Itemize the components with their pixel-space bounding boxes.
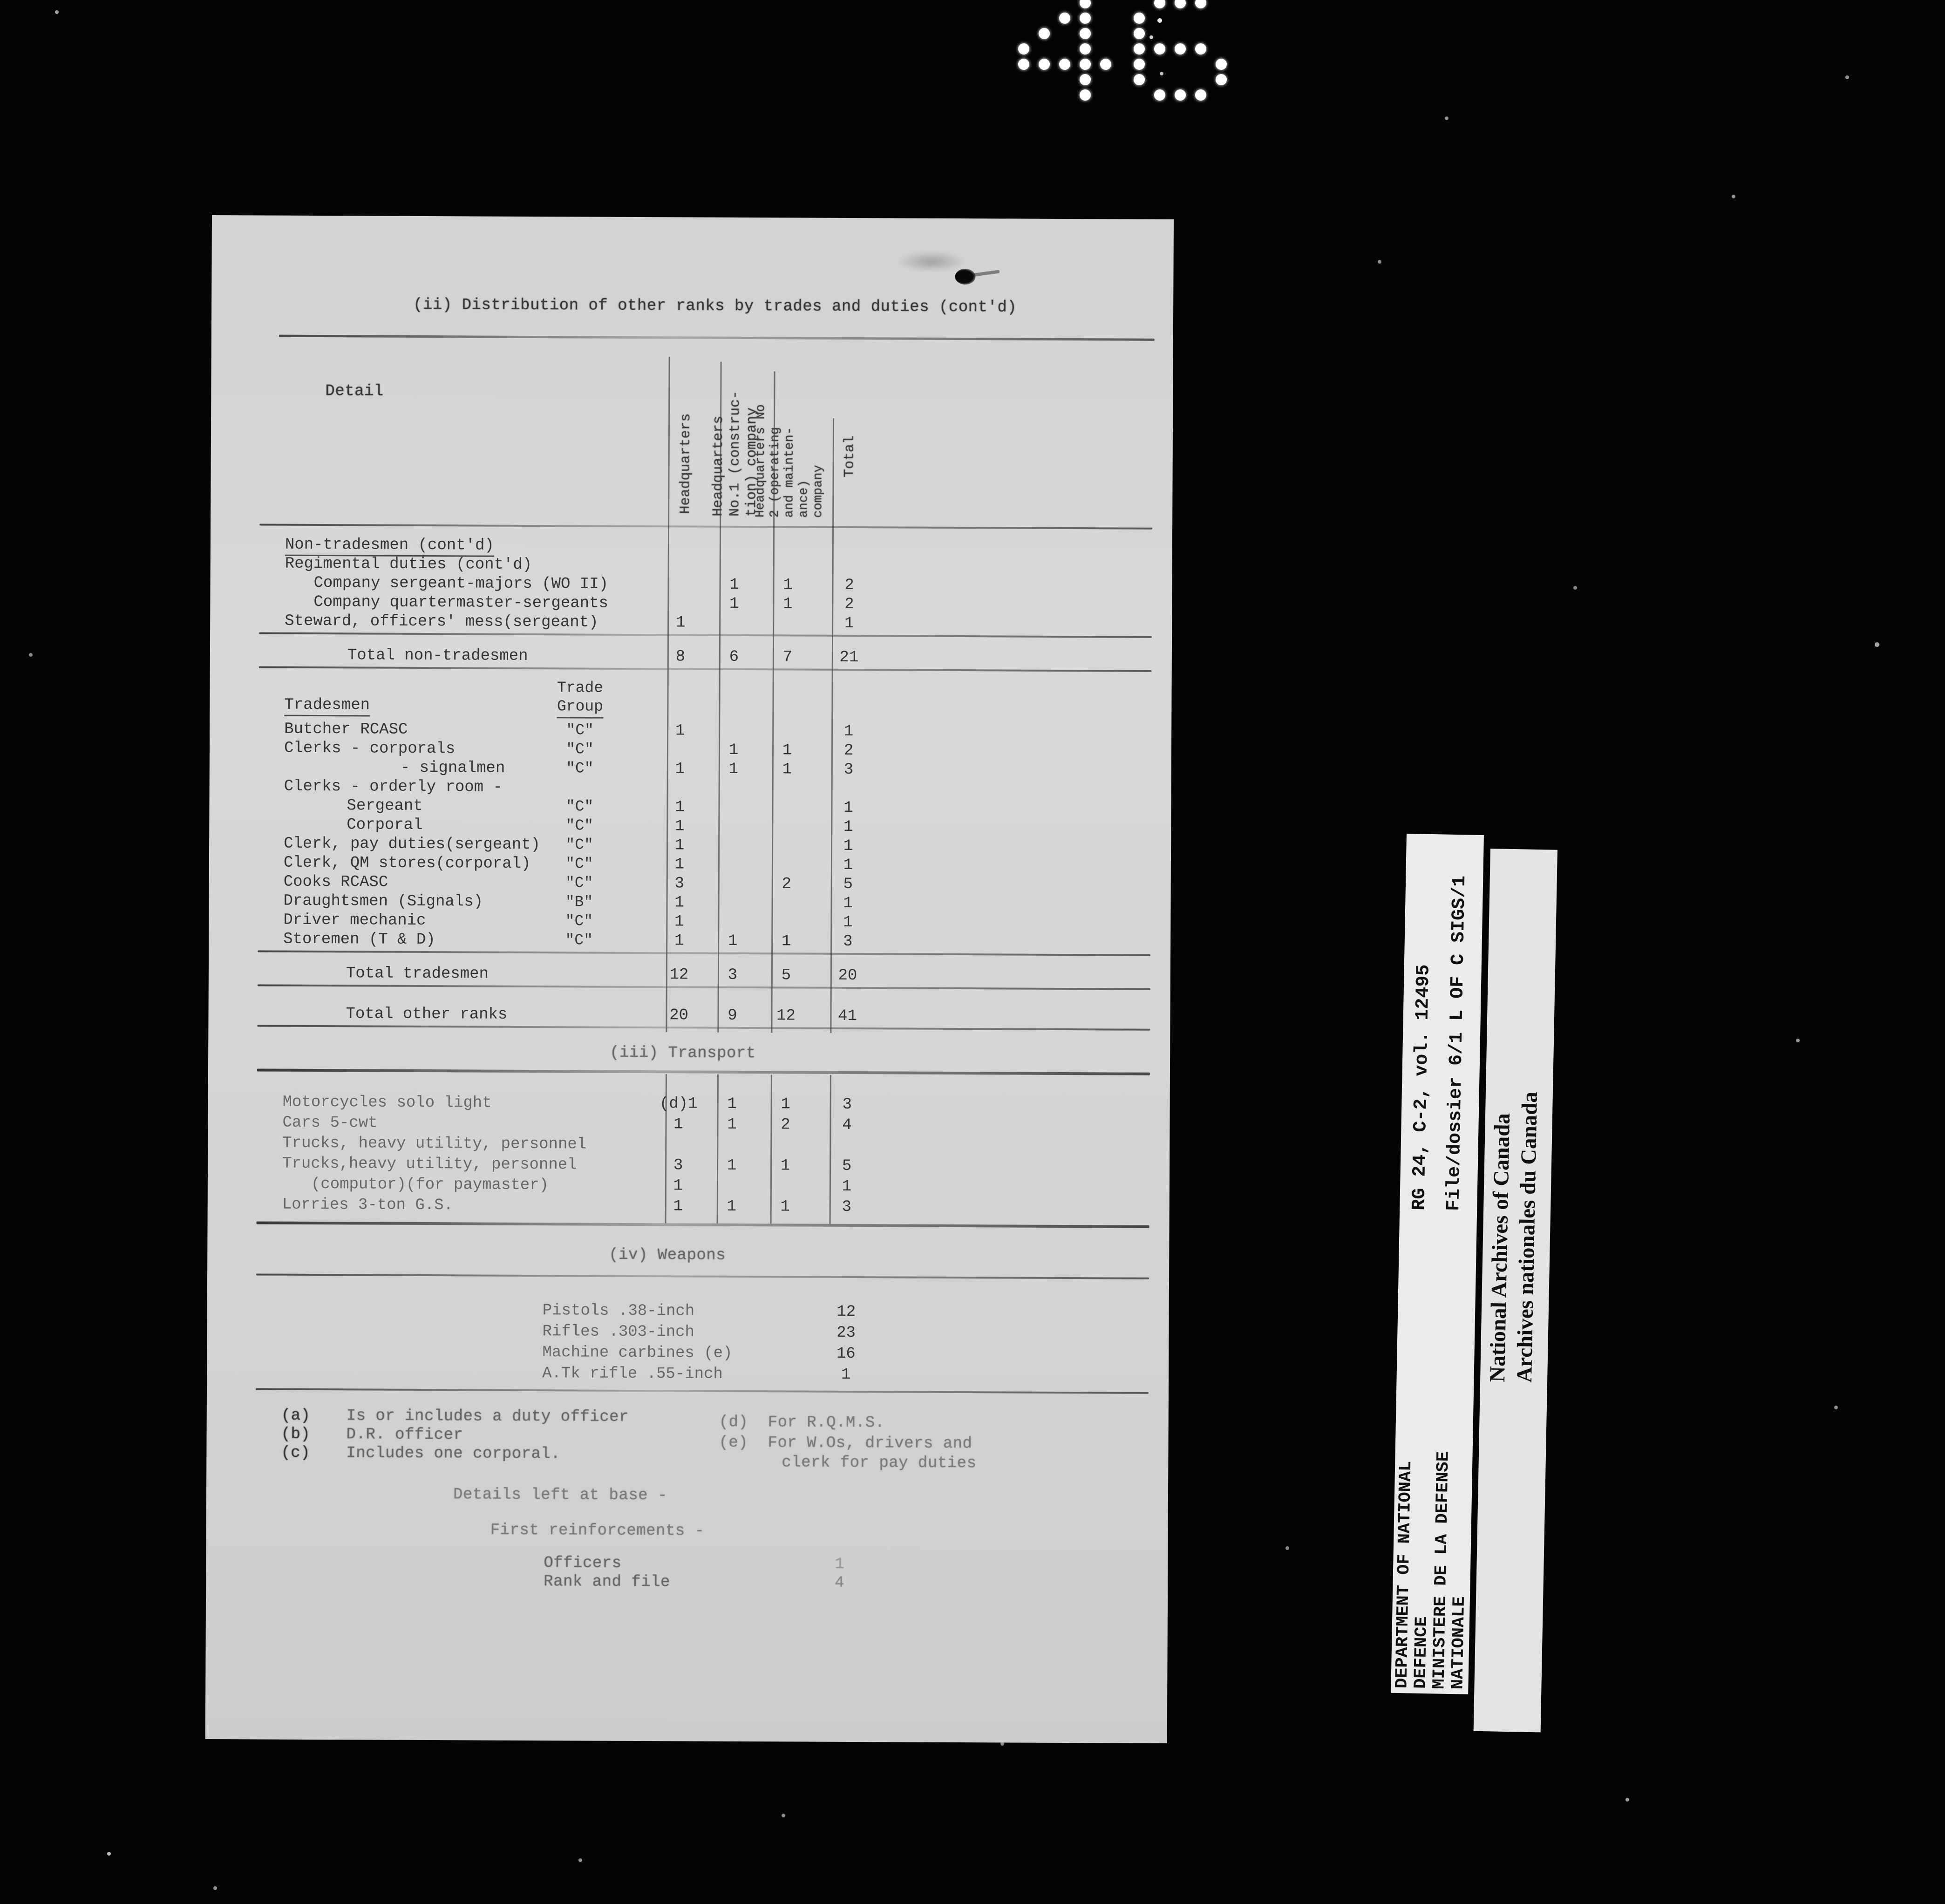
row-label: Cars 5-cwt	[282, 1114, 377, 1132]
footnote-text: Is or includes a duty officer	[347, 1407, 629, 1426]
weapons-bottom-rule	[256, 1388, 1149, 1394]
dot	[1195, 89, 1206, 101]
table-row: Storemen (T & D)"C"1113	[209, 930, 1145, 953]
department-label: DEPARTMENT OF NATIONALDEFENCEMINISTERE D…	[1391, 1343, 1475, 1694]
row-label: Trucks,heavy utility, personnel	[282, 1155, 577, 1174]
row-label: Total tradesmen	[346, 965, 489, 983]
trade-group-cell: "C"	[552, 760, 608, 777]
reinforcement-value: 1	[835, 1556, 844, 1573]
row-label: Total non-tradesmen	[347, 646, 528, 665]
value-cell: 12	[650, 966, 708, 984]
value-cell: 7	[759, 648, 816, 666]
dot	[1018, 59, 1029, 70]
value-cell: 1	[819, 895, 877, 913]
dot	[1134, 43, 1145, 54]
value-cell: 3	[818, 1198, 876, 1217]
value-cell: 1	[651, 798, 708, 816]
value-cell: 5	[819, 876, 877, 894]
value-cell: 1	[704, 932, 762, 951]
header-line: Group	[557, 697, 603, 718]
row-label: - signalmen	[401, 759, 505, 777]
ink-blob	[955, 269, 975, 285]
value-cell: 1	[819, 857, 877, 875]
row-label: Motorcycles solo light	[283, 1094, 492, 1112]
header-line: Total	[842, 270, 859, 477]
value-cell: 1	[705, 595, 763, 613]
dot	[1080, 89, 1091, 101]
weapons-top-rule	[256, 1273, 1149, 1279]
row-label: Non-tradesmen (cont'd)	[285, 536, 494, 557]
value-cell: 1	[759, 595, 816, 613]
table-row: Cars 5-cwt1124	[208, 1114, 1144, 1137]
value-cell: 2	[820, 577, 878, 595]
value-cell: 1	[817, 1366, 875, 1384]
value-cell: 1	[651, 722, 709, 740]
value-cell: 1	[651, 856, 708, 874]
row-label: Butcher RCASC	[284, 721, 408, 739]
reinforcement-label: Officers	[544, 1554, 621, 1572]
weapons-table	[212, 215, 1174, 219]
value-cell: 2	[820, 596, 878, 614]
value-cell: 16	[817, 1345, 875, 1363]
dot	[1216, 59, 1227, 70]
value-cell: 9	[703, 1007, 761, 1025]
value-cell: 5	[818, 1157, 876, 1176]
value-cell: 1	[703, 1198, 761, 1216]
table-row: Lorries 3-ton G.S.1113	[208, 1196, 1144, 1219]
value-cell: 1	[757, 932, 815, 951]
transport-section-title: (iii) Transport	[610, 1044, 756, 1062]
row-label: Steward, officers' mess(sergeant)	[285, 612, 598, 632]
footnote-marker: (b)	[281, 1426, 310, 1443]
trade-group-cell: "C"	[551, 912, 607, 930]
table-row: Rifles .303-inch23	[207, 1321, 1143, 1345]
weapons-section-title: (iv) Weapons	[609, 1246, 726, 1265]
value-cell: 1	[703, 1116, 761, 1134]
dot	[1134, 13, 1145, 24]
dot	[1154, 43, 1165, 54]
trade-group-cell: "C"	[552, 721, 608, 739]
row-label: Machine carbines (e)	[542, 1344, 732, 1362]
value-cell: 2	[820, 742, 877, 760]
value-cell: 3	[649, 1156, 707, 1175]
row-label: Clerk, pay duties(sergeant)	[284, 835, 540, 854]
table-row: A.Tk rifle .55-inch1	[207, 1363, 1143, 1387]
reinforcement-label: Rank and file	[544, 1573, 670, 1591]
value-cell: 21	[820, 649, 878, 667]
table-row: Total other ranks2091241	[208, 1005, 1144, 1028]
value-cell: 8	[652, 648, 709, 666]
value-cell: 1	[756, 1157, 814, 1175]
trade-group-cell: "C"	[551, 874, 607, 892]
header-line: Archives nationales du Canada	[1511, 1092, 1544, 1383]
archival-reference: RG 24, C-2, vol. 12495 File/dossier 6/1 …	[1400, 875, 1483, 1211]
value-cell: 1	[649, 1197, 707, 1216]
dot	[1080, 74, 1091, 85]
value-cell: 1	[650, 913, 708, 931]
col-header-headquarters: Headquarters	[677, 306, 695, 521]
strip-spacer	[1397, 1210, 1477, 1344]
value-cell: 3	[820, 761, 877, 779]
dot	[1175, 89, 1186, 101]
table-row: Pistols .38-inch12	[207, 1300, 1143, 1324]
row-label: Draughtsmen (Signals)	[283, 892, 483, 911]
header-line: Headquarters	[710, 309, 728, 517]
dot	[1134, 28, 1145, 39]
row-label: Lorries 3-ton G.S.	[282, 1196, 453, 1215]
value-cell: 1	[820, 723, 877, 741]
dot	[1080, 28, 1091, 39]
value-cell: 20	[650, 1006, 707, 1025]
header-line: Headquarters	[677, 306, 695, 514]
value-cell: 1	[650, 894, 708, 912]
film-speckles	[0, 0, 2, 2]
header-line: and mainten-	[782, 310, 798, 517]
table-row: Trucks, heavy utility, personnel	[208, 1134, 1144, 1157]
value-cell: 1	[705, 741, 762, 760]
row-label: Sergeant	[347, 797, 422, 815]
table-row: Motorcycles solo light(d)1113	[208, 1093, 1144, 1116]
value-cell: 12	[757, 1007, 815, 1025]
trade-group-cell: "C"	[552, 741, 608, 758]
value-cell: 1	[758, 741, 816, 760]
value-cell: 1	[651, 836, 708, 855]
dot	[1039, 59, 1050, 70]
dot	[1175, 0, 1186, 8]
value-cell: 2	[758, 875, 816, 893]
footnote-text: D.R. officer	[346, 1426, 463, 1444]
value-cell: 1	[650, 932, 708, 950]
header-line: 2 (operating	[768, 310, 783, 517]
value-cell: 1	[703, 1157, 761, 1175]
row-label: (computor)(for paymaster)	[311, 1176, 549, 1194]
row-label: Driver mechanic	[283, 911, 426, 930]
dot	[1059, 59, 1070, 70]
trade-group-cell: "C"	[551, 932, 607, 949]
dot	[1134, 74, 1145, 85]
value-cell: 1	[818, 1178, 876, 1196]
footnote-marker: (e)	[719, 1434, 748, 1452]
national-archives-strip: National Archives of CanadaArchives nati…	[1474, 849, 1557, 1732]
value-cell: 1	[819, 818, 877, 836]
dot	[1195, 43, 1206, 54]
faint-smudge	[896, 251, 966, 272]
transport-top-rule	[257, 1068, 1150, 1075]
col-header-total: Total	[841, 270, 859, 522]
value-cell: 1	[649, 1115, 707, 1134]
row-label: Clerks - orderly room -	[284, 778, 503, 796]
value-cell: (d)1	[650, 1095, 707, 1113]
value-cell: 1	[652, 614, 709, 632]
dot	[1175, 43, 1186, 54]
table-row: Total tradesmen123520	[209, 964, 1145, 987]
value-cell: 5	[757, 966, 815, 985]
trade-group-cell: "B"	[551, 893, 607, 911]
document-page: (ii) Distribution of other ranks by trad…	[205, 215, 1174, 1743]
value-cell: 1	[703, 1095, 761, 1114]
dot	[1195, 0, 1206, 8]
details-left-at-base: Details left at base -	[453, 1486, 667, 1504]
trade-group-cell: "C"	[551, 836, 607, 854]
dot	[1080, 59, 1091, 70]
dot	[1134, 59, 1145, 70]
value-cell: 1	[759, 576, 816, 594]
value-cell: 41	[818, 1007, 876, 1026]
row-label: Rifles .303-inch	[542, 1323, 694, 1341]
footnote-text-cont: clerk for pay duties	[782, 1454, 976, 1472]
first-reinforcements: First reinforcements -	[490, 1522, 705, 1540]
table-row: (computor)(for paymaster)11	[208, 1175, 1144, 1198]
value-cell: 12	[817, 1303, 875, 1321]
footnote-marker: (d)	[719, 1414, 748, 1431]
dot	[1059, 13, 1070, 24]
dot	[1100, 59, 1111, 70]
value-cell: 20	[819, 967, 877, 985]
national-archives-label: National Archives of CanadaArchives nati…	[1474, 1091, 1553, 1732]
dot	[1080, 13, 1091, 24]
value-cell: 1	[705, 576, 763, 594]
value-cell: 3	[819, 933, 877, 951]
row-label: Total other ranks	[346, 1005, 507, 1024]
row-label: Trucks, heavy utility, personnel	[282, 1135, 586, 1154]
reinforcement-value: 4	[835, 1574, 844, 1592]
value-cell: 3	[818, 1096, 876, 1114]
row-label: Clerk, QM stores(corporal)	[284, 854, 531, 873]
tradesmen-header-row: TradesmenTradeGroup	[210, 680, 1146, 724]
header-line: company	[811, 311, 827, 518]
value-cell: 1	[819, 837, 877, 856]
value-cell: 1	[758, 761, 816, 779]
row-label: Pistols .38-inch	[543, 1302, 695, 1320]
row-label: Company sergeant-majors (WO II)	[313, 574, 608, 593]
value-cell: 1	[651, 760, 709, 778]
dot	[1154, 0, 1165, 8]
dot	[1216, 74, 1227, 85]
dot	[1080, 0, 1091, 8]
table-row: Trucks,heavy utility, personnel3115	[208, 1155, 1144, 1178]
scanned-microfilm-frame: (ii) Distribution of other ranks by trad…	[0, 0, 1945, 1904]
table-row: Total non-tradesmen86721	[210, 646, 1146, 669]
archival-reference-strip: DEPARTMENT OF NATIONALDEFENCEMINISTERE D…	[1391, 834, 1484, 1694]
value-cell: 6	[705, 648, 763, 666]
header-line: Trade	[552, 679, 608, 698]
row-label: Cooks RCASC	[284, 873, 388, 891]
footnote-text: For R.Q.M.S.	[768, 1414, 885, 1432]
transport-bottom-rule	[257, 1221, 1149, 1228]
rg-volume-line: RG 24, C-2, vol. 12495	[1402, 875, 1443, 1210]
row-label: Corporal	[347, 816, 422, 834]
value-cell: 1	[819, 799, 877, 817]
file-dossier-line: File/dossier 6/1 L OF C SIGS/1	[1437, 875, 1477, 1211]
footnote-marker: (a)	[281, 1407, 311, 1425]
table-row: Steward, officers' mess(sergeant)11	[210, 612, 1146, 635]
value-cell: 1	[820, 615, 878, 633]
table-row: Machine carbines (e)16	[207, 1342, 1143, 1366]
value-cell: 1	[757, 1095, 815, 1114]
header-line: Headquarters No	[754, 310, 769, 517]
trade-group-cell: "C"	[551, 798, 607, 816]
row-label: Clerks - corporals	[284, 740, 455, 758]
transport-table	[212, 215, 1174, 219]
trade-group-heading: TradeGroup	[552, 679, 608, 719]
value-cell: 1	[756, 1198, 814, 1216]
row-label: A.Tk rifle .55-inch	[542, 1365, 723, 1383]
footnote-text: For W.Os, drivers and	[768, 1434, 972, 1453]
value-cell: 4	[818, 1116, 876, 1135]
header-bottom-rule	[259, 524, 1152, 529]
value-cell: 23	[817, 1324, 875, 1342]
dot	[1080, 43, 1091, 54]
detail-column-header: Detail	[325, 382, 384, 401]
value-cell: 3	[704, 966, 762, 985]
value-cell: 1	[819, 914, 877, 932]
footnote-text: Includes one corporal.	[346, 1444, 560, 1463]
header-line: ance)	[797, 310, 812, 517]
tradesmen-heading: Tradesmen	[284, 696, 370, 717]
dot	[1018, 43, 1029, 54]
row-label: Storemen (T & D)	[283, 931, 435, 949]
main-table	[212, 215, 1174, 219]
row-label: Company quartermaster-sergeants	[313, 593, 608, 612]
trade-group-cell: "C"	[551, 855, 607, 873]
trade-group-cell: "C"	[551, 817, 607, 835]
row-label: Regimental duties (cont'd)	[285, 555, 532, 574]
col-header-hq-no2: Headquarters No2 (operatingand mainten-a…	[754, 310, 827, 522]
footnote-marker: (c)	[281, 1444, 310, 1462]
value-cell: 1	[651, 817, 708, 836]
value-cell: 1	[649, 1177, 707, 1195]
value-cell: 2	[756, 1116, 814, 1134]
value-cell: 3	[651, 875, 708, 893]
dot	[1039, 28, 1050, 39]
value-cell: 1	[705, 761, 762, 779]
dot	[1154, 89, 1165, 101]
header-line: No.1 (construc-	[727, 309, 744, 517]
